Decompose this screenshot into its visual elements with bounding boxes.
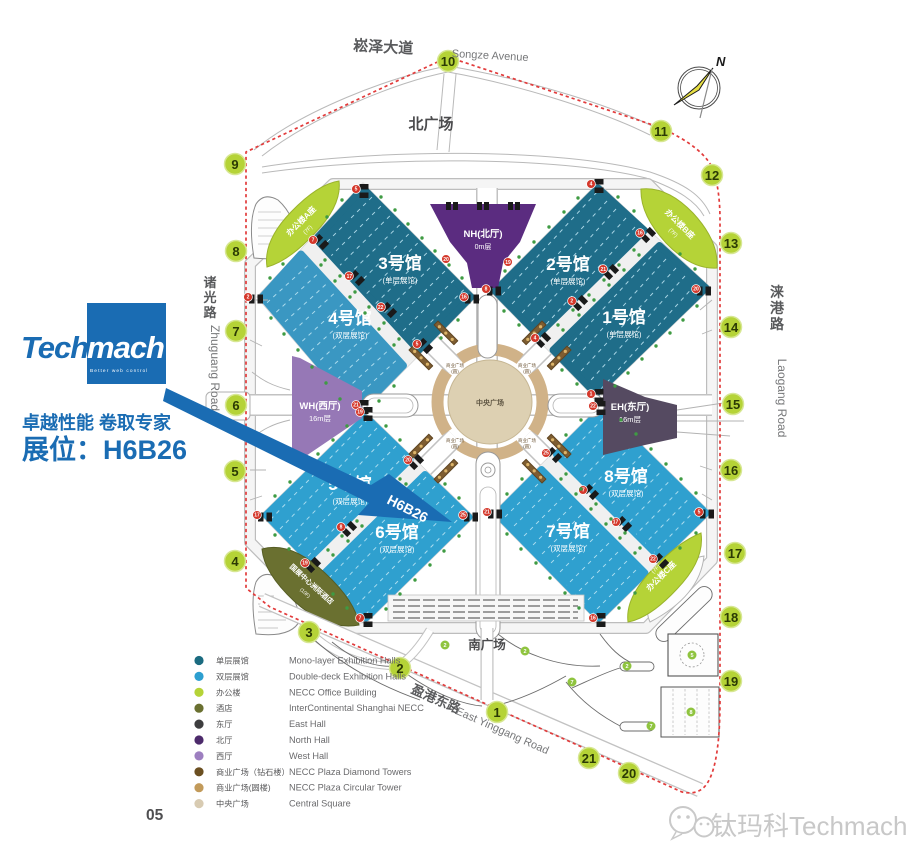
svg-text:东厅: 东厅 [216,719,232,729]
svg-text:NECC Plaza Circular Tower: NECC Plaza Circular Tower [289,783,402,793]
svg-text:West Hall: West Hall [289,751,328,761]
svg-text:WH(西厅): WH(西厅) [299,401,340,412]
svg-text:7号馆: 7号馆 [546,521,589,541]
svg-text:20: 20 [622,766,636,781]
svg-text:5: 5 [698,509,701,515]
svg-text:EH(东厅): EH(东厅) [611,401,650,413]
svg-text:12: 12 [705,168,719,183]
svg-text:15: 15 [726,397,740,412]
svg-text:(单层展馆): (单层展馆) [607,329,642,339]
svg-text:25: 25 [543,450,549,456]
svg-text:8: 8 [485,286,488,292]
svg-text:(单层展馆): (单层展馆) [551,276,586,286]
svg-text:6号馆: 6号馆 [375,522,418,542]
svg-text:2: 2 [523,649,526,655]
svg-text:8: 8 [340,524,343,530]
svg-text:20: 20 [405,457,411,463]
svg-text:5: 5 [690,653,693,659]
svg-text:酒店: 酒店 [216,703,232,713]
svg-text:4: 4 [231,554,239,569]
svg-text:西厅: 西厅 [216,752,232,761]
svg-text:3: 3 [305,625,312,640]
svg-text:7: 7 [570,680,573,686]
svg-text:中央广场: 中央广场 [476,398,504,407]
svg-text:17: 17 [728,546,742,561]
svg-text:双层展馆: 双层展馆 [216,671,249,681]
svg-text:mach: mach [87,330,164,365]
svg-text:4号馆: 4号馆 [328,308,371,328]
svg-text:(双层展馆): (双层展馆) [551,543,586,553]
svg-text:NECC Plaza Diamond Towers: NECC Plaza Diamond Towers [289,767,412,777]
svg-text:1: 1 [590,391,593,397]
svg-text:2: 2 [625,664,628,670]
svg-text:2号馆: 2号馆 [546,254,589,274]
svg-text:5: 5 [231,464,238,479]
svg-text:05: 05 [146,807,164,824]
svg-text:16: 16 [724,463,738,478]
svg-text:Tech: Tech [21,330,88,365]
svg-text:16: 16 [590,615,596,621]
svg-text:9: 9 [231,157,238,172]
svg-text:崧泽大道: 崧泽大道 [353,36,414,57]
svg-text:21: 21 [353,402,359,408]
svg-text:(双层展馆): (双层展馆) [609,488,644,498]
svg-text:0m层: 0m层 [475,243,492,251]
svg-text:1: 1 [493,705,500,720]
svg-text:18: 18 [724,610,738,625]
svg-text:涞: 涞 [770,284,784,300]
svg-text:14: 14 [724,320,739,335]
svg-text:7: 7 [359,615,362,621]
svg-text:19: 19 [505,260,511,266]
svg-text:NECC Office Building: NECC Office Building [289,687,377,697]
svg-text:商业广场: 商业广场 [518,437,536,444]
svg-text:19: 19 [357,409,363,415]
svg-text:钛玛科Techmach: 钛玛科Techmach [711,811,908,841]
svg-text:Zhuguang Road: Zhuguang Road [208,325,222,411]
svg-text:北广场: 北广场 [408,115,453,133]
svg-text:17: 17 [254,512,260,518]
svg-text:7: 7 [312,237,315,243]
svg-text:港: 港 [770,300,785,316]
svg-text:25: 25 [460,512,466,518]
svg-text:(双层展馆): (双层展馆) [333,330,368,340]
svg-text:4: 4 [590,181,593,187]
svg-text:3号馆: 3号馆 [378,253,421,273]
svg-text:20: 20 [443,257,449,263]
svg-text:21: 21 [484,509,490,515]
svg-text:商业广场: 商业广场 [446,362,464,369]
svg-text:16: 16 [461,294,467,300]
svg-text:商业广场(圆楼): 商业广场(圆楼) [216,783,271,793]
svg-text:20: 20 [693,286,699,292]
svg-text:路: 路 [203,305,217,320]
svg-text:8号馆: 8号馆 [604,466,647,486]
svg-text:17: 17 [347,274,353,280]
svg-text:19: 19 [302,560,308,566]
svg-text:8: 8 [232,244,239,259]
svg-text:InterContinental Shanghai NECC: InterContinental Shanghai NECC [289,703,424,713]
svg-text:2: 2 [570,299,573,305]
svg-text:2: 2 [443,643,446,649]
svg-text:商业广场: 商业广场 [446,437,464,444]
svg-text:Mono-layer Exhibition Halls: Mono-layer Exhibition Halls [289,656,401,666]
svg-text:4: 4 [534,335,537,341]
svg-text:13: 13 [724,236,738,251]
svg-text:(单层展馆): (单层展馆) [383,275,418,285]
svg-text:5: 5 [416,341,419,347]
svg-text:展位：H6B26: 展位：H6B26 [22,434,187,465]
svg-text:Better web control: Better web control [90,368,148,374]
svg-text:19: 19 [724,674,738,689]
svg-text:商业广场（钻石楼）: 商业广场（钻石楼） [216,767,290,777]
svg-text:(双层展馆): (双层展馆) [380,544,415,554]
svg-text:N: N [716,54,726,69]
svg-text:21: 21 [582,751,596,766]
svg-text:5: 5 [355,186,358,192]
svg-text:1号馆: 1号馆 [602,307,645,327]
svg-text:16: 16 [637,230,643,236]
svg-text:7: 7 [649,724,652,730]
svg-text:16m层: 16m层 [309,414,332,423]
svg-text:2: 2 [247,294,250,300]
svg-text:路: 路 [770,316,785,332]
svg-text:8: 8 [689,710,692,716]
svg-text:NH(北厅): NH(北厅) [463,228,502,240]
svg-text:北厅: 北厅 [216,736,232,745]
svg-text:卓越性能 卷取专家: 卓越性能 卷取专家 [22,412,172,433]
svg-text:7: 7 [232,324,239,339]
svg-text:East Hall: East Hall [289,719,326,729]
svg-text:光: 光 [202,290,216,305]
svg-text:单层展馆: 单层展馆 [216,656,249,666]
svg-text:11: 11 [654,124,668,139]
svg-text:22: 22 [590,403,596,409]
svg-text:办公楼: 办公楼 [216,687,241,697]
svg-text:21: 21 [600,267,606,273]
svg-text:中央广场: 中央广场 [216,799,249,809]
svg-text:North Hall: North Hall [289,735,330,745]
svg-text:22: 22 [650,556,656,562]
svg-text:Central Square: Central Square [289,799,351,809]
svg-text:6: 6 [232,398,239,413]
svg-text:Laogang Road: Laogang Road [775,359,789,438]
svg-text:诸: 诸 [203,275,216,290]
svg-text:商业广场: 商业广场 [518,362,536,369]
svg-text:17: 17 [613,519,619,525]
svg-text:南广场: 南广场 [468,637,506,652]
svg-text:22: 22 [378,305,384,311]
svg-text:Double-deck Exhibition Halls: Double-deck Exhibition Halls [289,671,406,681]
